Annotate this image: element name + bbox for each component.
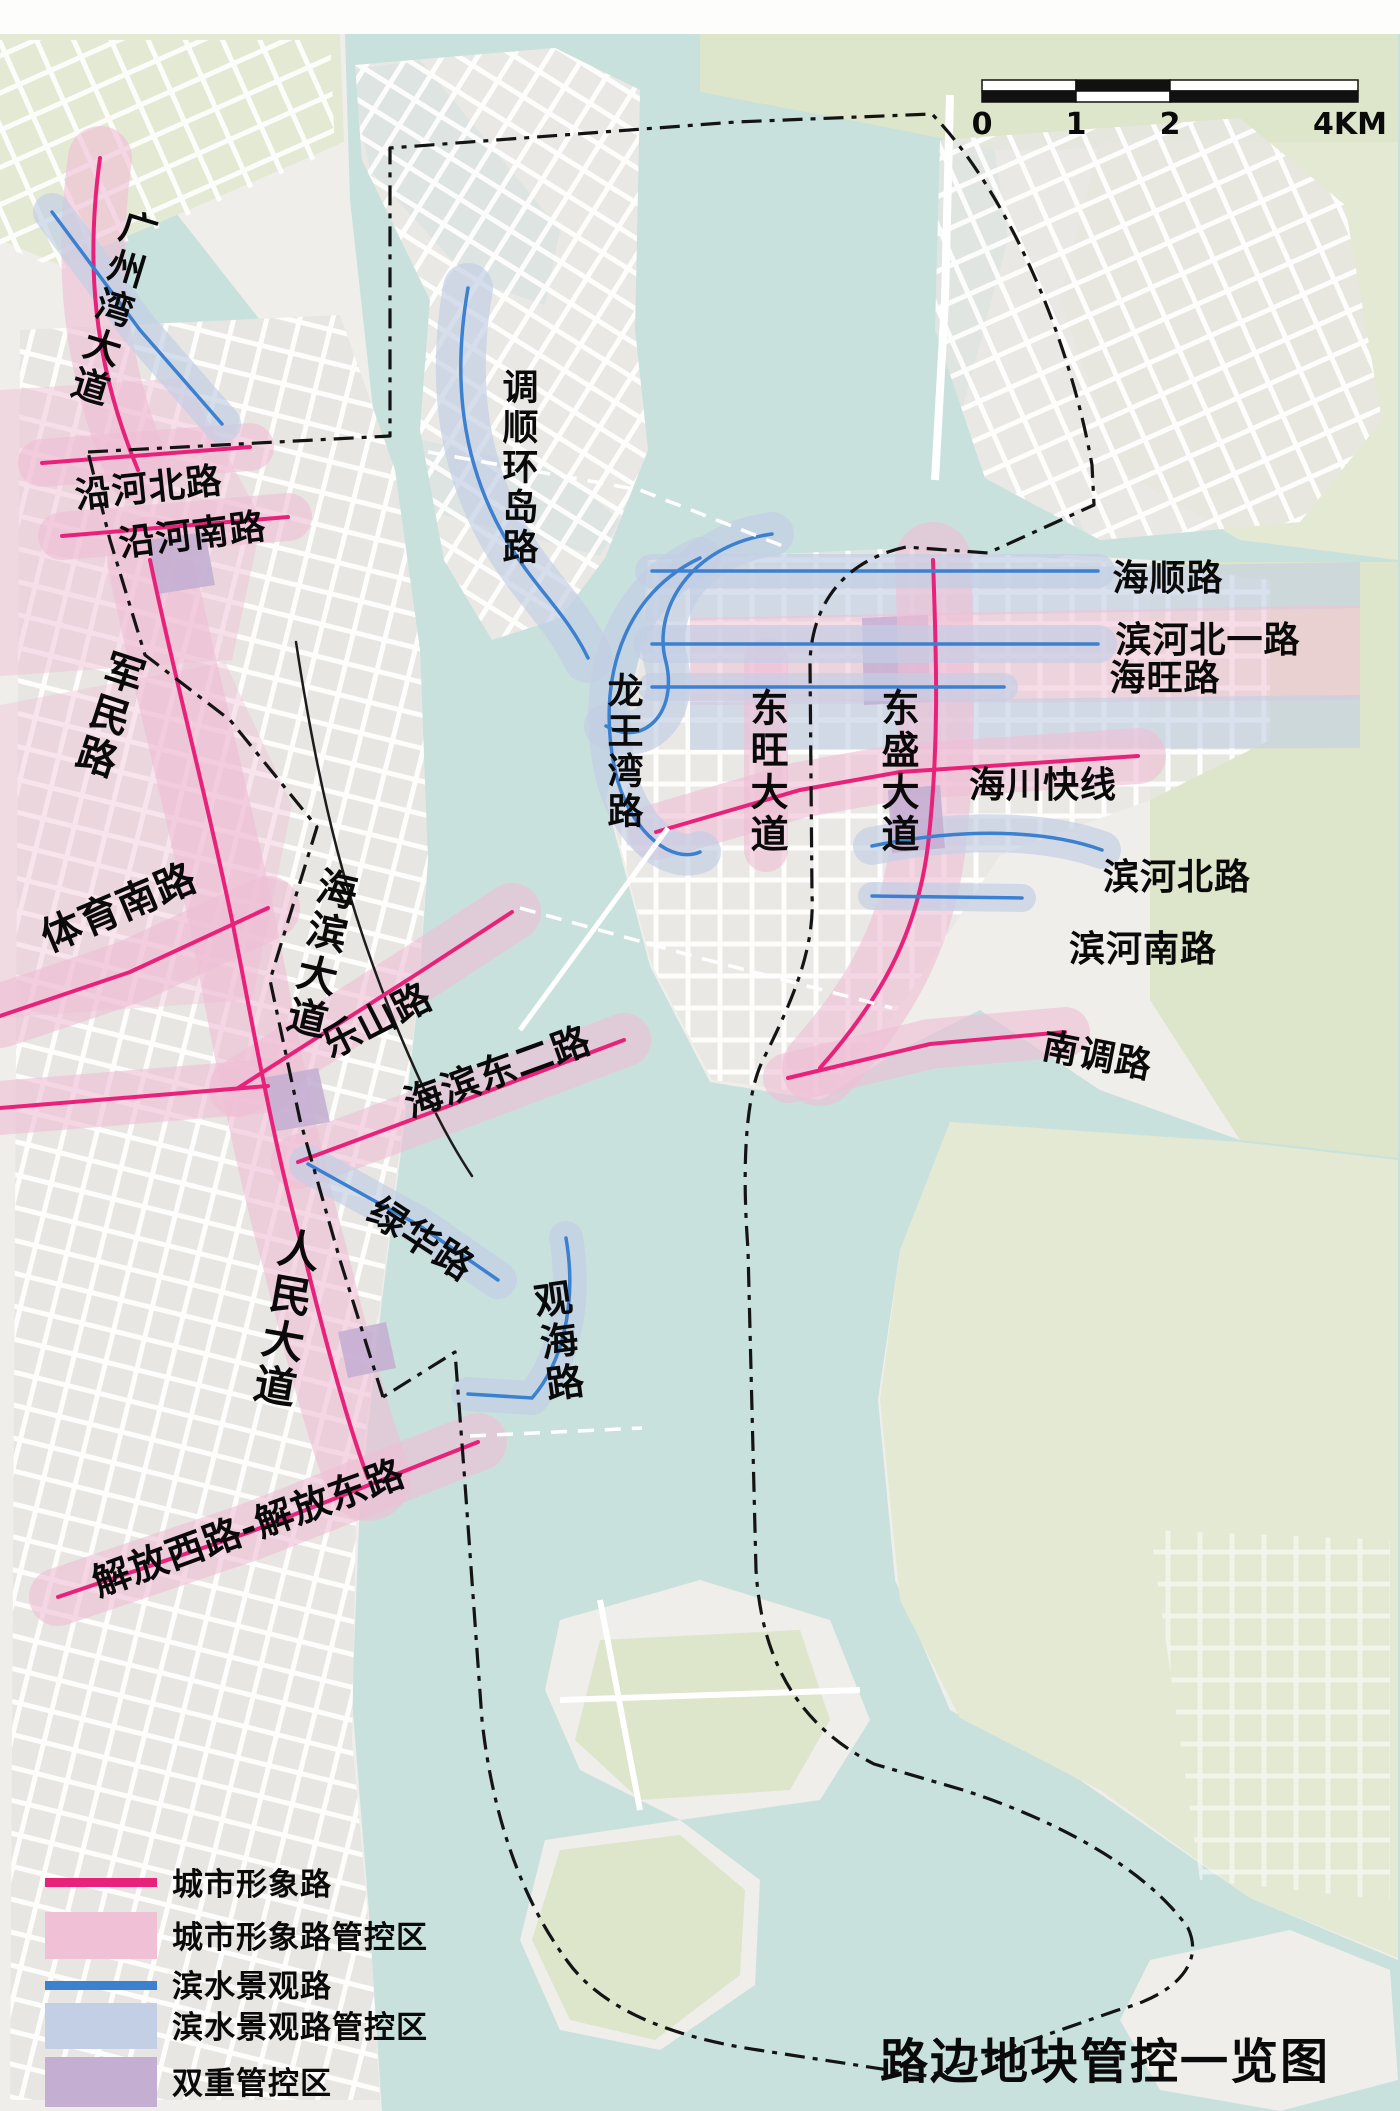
road-label-diaoshun: 调顺环岛路 [497,368,539,568]
road-label-dongsheng-dadao: 东盛大道 [875,688,919,856]
legend-label-waterfront-road: 滨水景观路 [172,1969,332,2005]
legend-swatch-city-image-road [45,1878,157,1887]
map-title: 路边地块管控一览图 [880,2034,1330,2090]
road-label-binhebeiyi: 滨河北一路 [1115,620,1300,661]
legend-label-city-image-zone: 城市形象路管控区 [172,1920,428,1956]
legend-swatch-city-image-zone [45,1912,157,1959]
road-label-dongwang-dadao: 东旺大道 [744,688,788,856]
legend-label-city-image-road: 城市形象路 [172,1867,332,1903]
legend-label-dual-zone: 双重管控区 [172,2066,332,2102]
legend-swatch-dual-zone [45,2057,157,2107]
legend-swatch-waterfront-zone [45,2003,157,2049]
road-label-haichuan: 海川快线 [969,765,1117,806]
road-label-binhenan: 滨河南路 [1069,929,1217,970]
map-canvas: 广州湾大道 沿河北路 沿河南路 军民路 体育南路 海滨大道 乐山路 海滨东二路 … [0,0,1400,2111]
road-label-haiwang: 海旺路 [1109,658,1220,699]
road-label-binhebei: 滨河北路 [1103,857,1251,898]
scale-tick-1: 1 [1066,107,1087,142]
legend-label-waterfront-zone: 滨水景观路管控区 [172,2010,428,2046]
road-label-longwangwan: 龙王湾路 [602,672,644,832]
scale-tick-0: 0 [972,107,993,142]
scale-tick-2: 2 [1160,107,1181,142]
road-label-haishun: 海顺路 [1112,558,1223,599]
legend-swatch-waterfront-road [45,1981,157,1990]
scale-tick-4km: 4KM [1313,107,1387,142]
planning-map: 广州湾大道 沿河北路 沿河南路 军民路 体育南路 海滨大道 乐山路 海滨东二路 … [0,0,1400,2111]
